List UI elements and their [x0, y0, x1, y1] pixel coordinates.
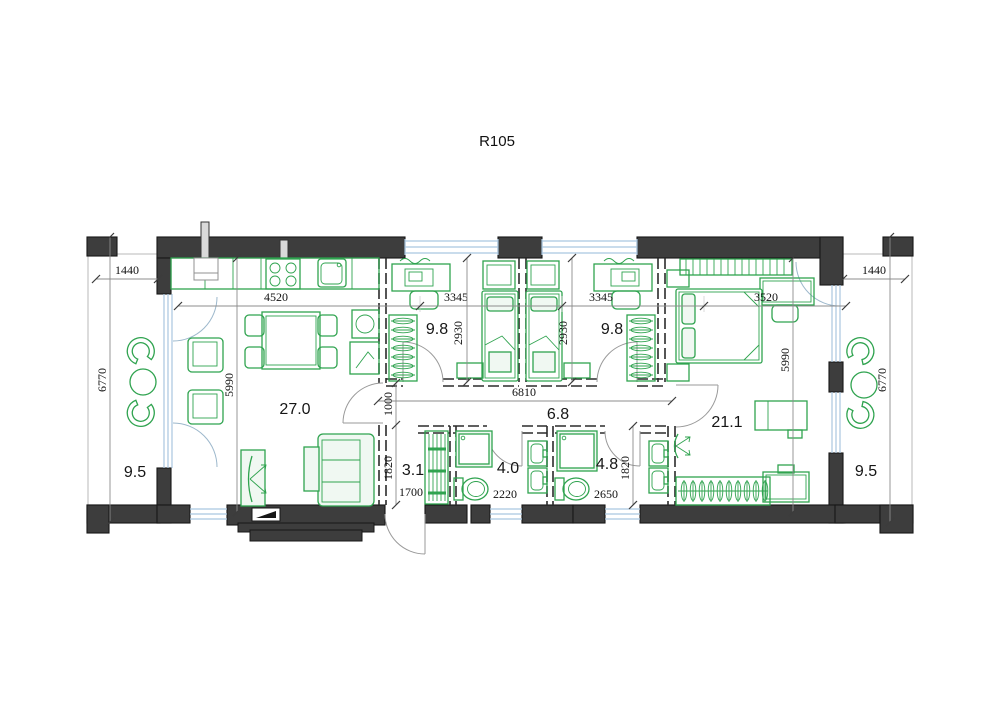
room-label-bathroom-1: 4.0 [497, 460, 519, 477]
porch-chimney [227, 505, 385, 525]
shower [456, 431, 492, 467]
long-wardrobe [676, 477, 770, 505]
desk [392, 264, 450, 309]
room-label-terrace-right: 9.5 [855, 463, 877, 480]
desk-chair [772, 305, 798, 322]
curtain [604, 259, 634, 264]
dim-terrace-left-width: 1440 [115, 263, 139, 277]
dim-rack-length: 1700 [399, 485, 423, 499]
dim-bathroom2-depth: 1820 [618, 456, 632, 480]
tv-unit [241, 450, 266, 506]
terrace-table [130, 369, 156, 395]
double-bed [676, 289, 762, 363]
dim-master-depth: 5990 [778, 348, 792, 372]
door-living [343, 383, 383, 423]
room-label-wardrobe: 3.1 [402, 462, 424, 479]
window-living-south [190, 509, 227, 519]
dim-master-width: 3520 [754, 290, 778, 304]
room-label-master-bedroom: 21.1 [711, 414, 742, 431]
dim-bedroom2-width: 3345 [589, 290, 613, 304]
drawing-title: R105 [479, 133, 515, 150]
dim-kitchen-width: 4520 [264, 290, 288, 304]
dim-bedroom2-depth: 2930 [556, 321, 570, 345]
pillow [682, 294, 695, 324]
bench [457, 363, 483, 378]
dining-chair [245, 347, 264, 368]
terrace-chair [844, 399, 879, 433]
bedroom-1-furniture [389, 259, 518, 382]
armchair [188, 390, 223, 424]
kitchen-counter [171, 258, 379, 289]
glazed-wall-east [796, 262, 840, 453]
washbasin [649, 441, 668, 466]
shower [557, 431, 597, 471]
floor-plan: R105 [0, 0, 1000, 707]
washbasin [528, 441, 547, 466]
room-label-bedroom-2: 9.8 [601, 321, 623, 338]
room-label-terrace-left: 9.5 [124, 464, 146, 481]
kitchen-sink [318, 259, 346, 287]
glazed-wall-west [164, 294, 217, 468]
window-bedroom-1 [405, 239, 498, 255]
pillow [487, 297, 513, 311]
washbasin [649, 468, 668, 493]
terrace-table [851, 372, 877, 398]
toilet [454, 478, 488, 500]
dim-bedroom1-depth: 2930 [451, 321, 465, 345]
bedroom-2-furniture [526, 259, 655, 382]
room-label-living: 27.0 [279, 401, 310, 418]
dining-chair [318, 315, 337, 336]
vent-pipe-icon [201, 222, 209, 258]
pillow [531, 297, 557, 311]
vent-pipe-icon [280, 240, 288, 258]
wardrobe [627, 315, 655, 381]
dim-hall-width: 1000 [381, 392, 395, 416]
dining-table [245, 312, 337, 369]
door-entrance [385, 514, 425, 554]
room-label-bedroom-1: 9.8 [426, 321, 448, 338]
dim-hall-length: 6810 [512, 385, 536, 399]
dim-terrace-left-depth: 6770 [95, 368, 109, 392]
terrace-chair [844, 333, 879, 367]
bench [564, 363, 590, 378]
dim-terrace-right-depth: 6770 [875, 368, 889, 392]
dim-terrace-right-width: 1440 [862, 263, 886, 277]
lounge-corner [350, 310, 379, 374]
terrace-right-set [844, 333, 879, 432]
terrace-left-set [124, 335, 156, 430]
washbasin [528, 468, 547, 493]
room-label-bathroom-2: 4.8 [596, 456, 618, 473]
radiator [680, 259, 792, 275]
terrace-door [173, 423, 217, 467]
armchair [188, 338, 223, 372]
room-label-hallway: 6.8 [547, 406, 569, 423]
cooktop [266, 259, 300, 289]
terrace-chair [124, 399, 156, 430]
window-bedroom-2 [542, 239, 637, 255]
dining-chair [245, 315, 264, 336]
vanity [755, 401, 807, 438]
dim-living-depth: 5990 [222, 373, 236, 397]
master-bedroom-furniture [667, 259, 814, 505]
dim-bedroom1-width: 3345 [444, 290, 468, 304]
window-bath1-south [490, 509, 522, 519]
sofa [318, 434, 374, 506]
pillow [682, 328, 695, 358]
side-table [304, 447, 319, 491]
single-bed [482, 291, 518, 381]
nightstand [667, 364, 689, 381]
dim-bathroom1-width: 2220 [493, 487, 517, 501]
toilet [555, 478, 589, 500]
window-bath2-south [605, 509, 640, 519]
boiler [194, 258, 218, 280]
wall-tv [675, 434, 691, 458]
dim-corridor-depth: 1820 [381, 456, 395, 480]
terrace-chair [124, 335, 156, 366]
pillar-nw [87, 237, 117, 256]
drying-rack [425, 431, 448, 504]
dim-bathroom2-width: 2650 [594, 487, 618, 501]
dining-chair [318, 347, 337, 368]
curtain [400, 259, 430, 264]
